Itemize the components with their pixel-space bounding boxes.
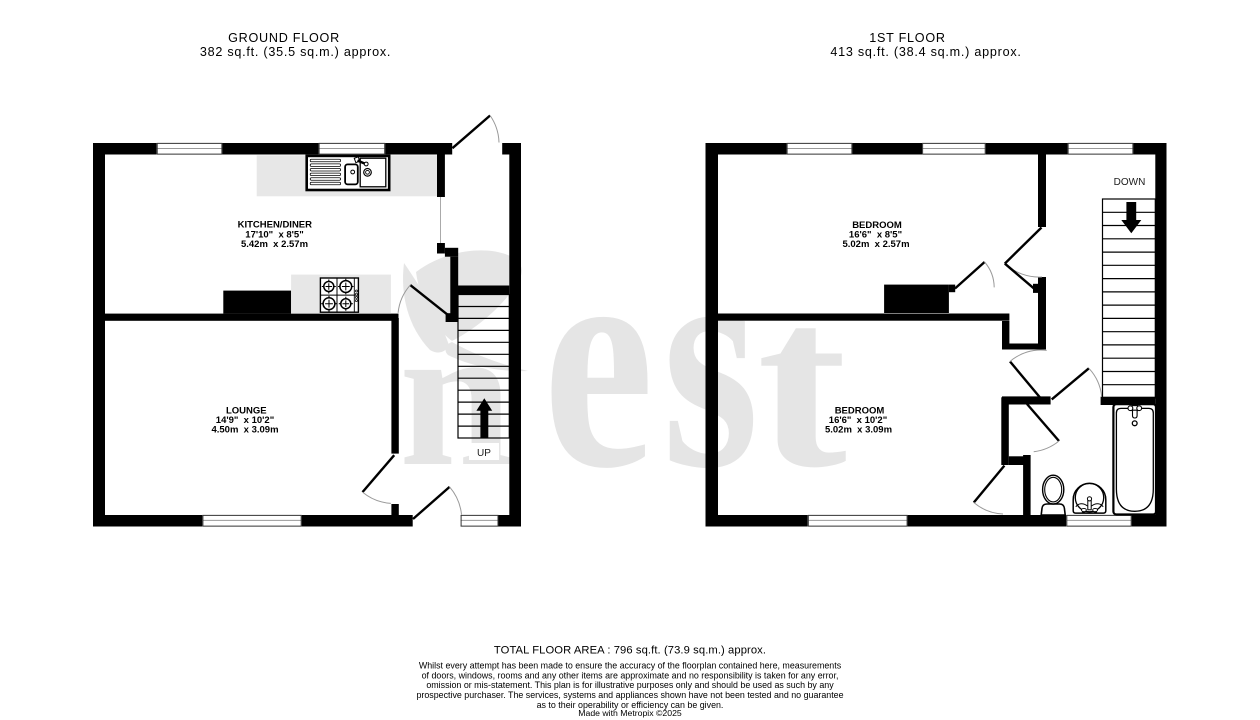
svg-text:es: es (543, 185, 767, 534)
svg-text:t: t (757, 248, 850, 518)
svg-text:Made with Metropix ©2025: Made with Metropix ©2025 (578, 708, 682, 718)
svg-text:5.02m x 2.57m: 5.02m x 2.57m (842, 239, 909, 250)
svg-text:5.02m x 3.09m: 5.02m x 3.09m (825, 425, 892, 436)
svg-text:prospective purchaser. The ser: prospective purchaser. The services, sys… (416, 690, 843, 700)
svg-text:of doors, windows, rooms and a: of doors, windows, rooms and any other i… (422, 670, 839, 680)
svg-text:1ST FLOOR: 1ST FLOOR (869, 31, 946, 45)
svg-text:382 sq.ft. (35.5 sq.m.) approx: 382 sq.ft. (35.5 sq.m.) approx. (200, 45, 391, 59)
svg-text:GROUND FLOOR: GROUND FLOOR (228, 31, 340, 45)
svg-text:5.42m x 2.57m: 5.42m x 2.57m (241, 239, 308, 250)
svg-text:omission or mis-statement. Thi: omission or mis-statement. This plan is … (426, 680, 834, 690)
svg-text:Whilst every attempt has been: Whilst every attempt has been made to en… (419, 661, 842, 671)
svg-text:TOTAL FLOOR AREA : 796 sq.ft.: TOTAL FLOOR AREA : 796 sq.ft. (73.9 sq.m… (494, 645, 766, 657)
svg-text:4.50m x 3.09m: 4.50m x 3.09m (211, 425, 278, 436)
svg-text:413 sq.ft. (38.4 sq.m.) approx: 413 sq.ft. (38.4 sq.m.) approx. (830, 45, 1021, 59)
svg-text:DOWN: DOWN (1114, 177, 1146, 188)
svg-text:UP: UP (477, 448, 491, 459)
